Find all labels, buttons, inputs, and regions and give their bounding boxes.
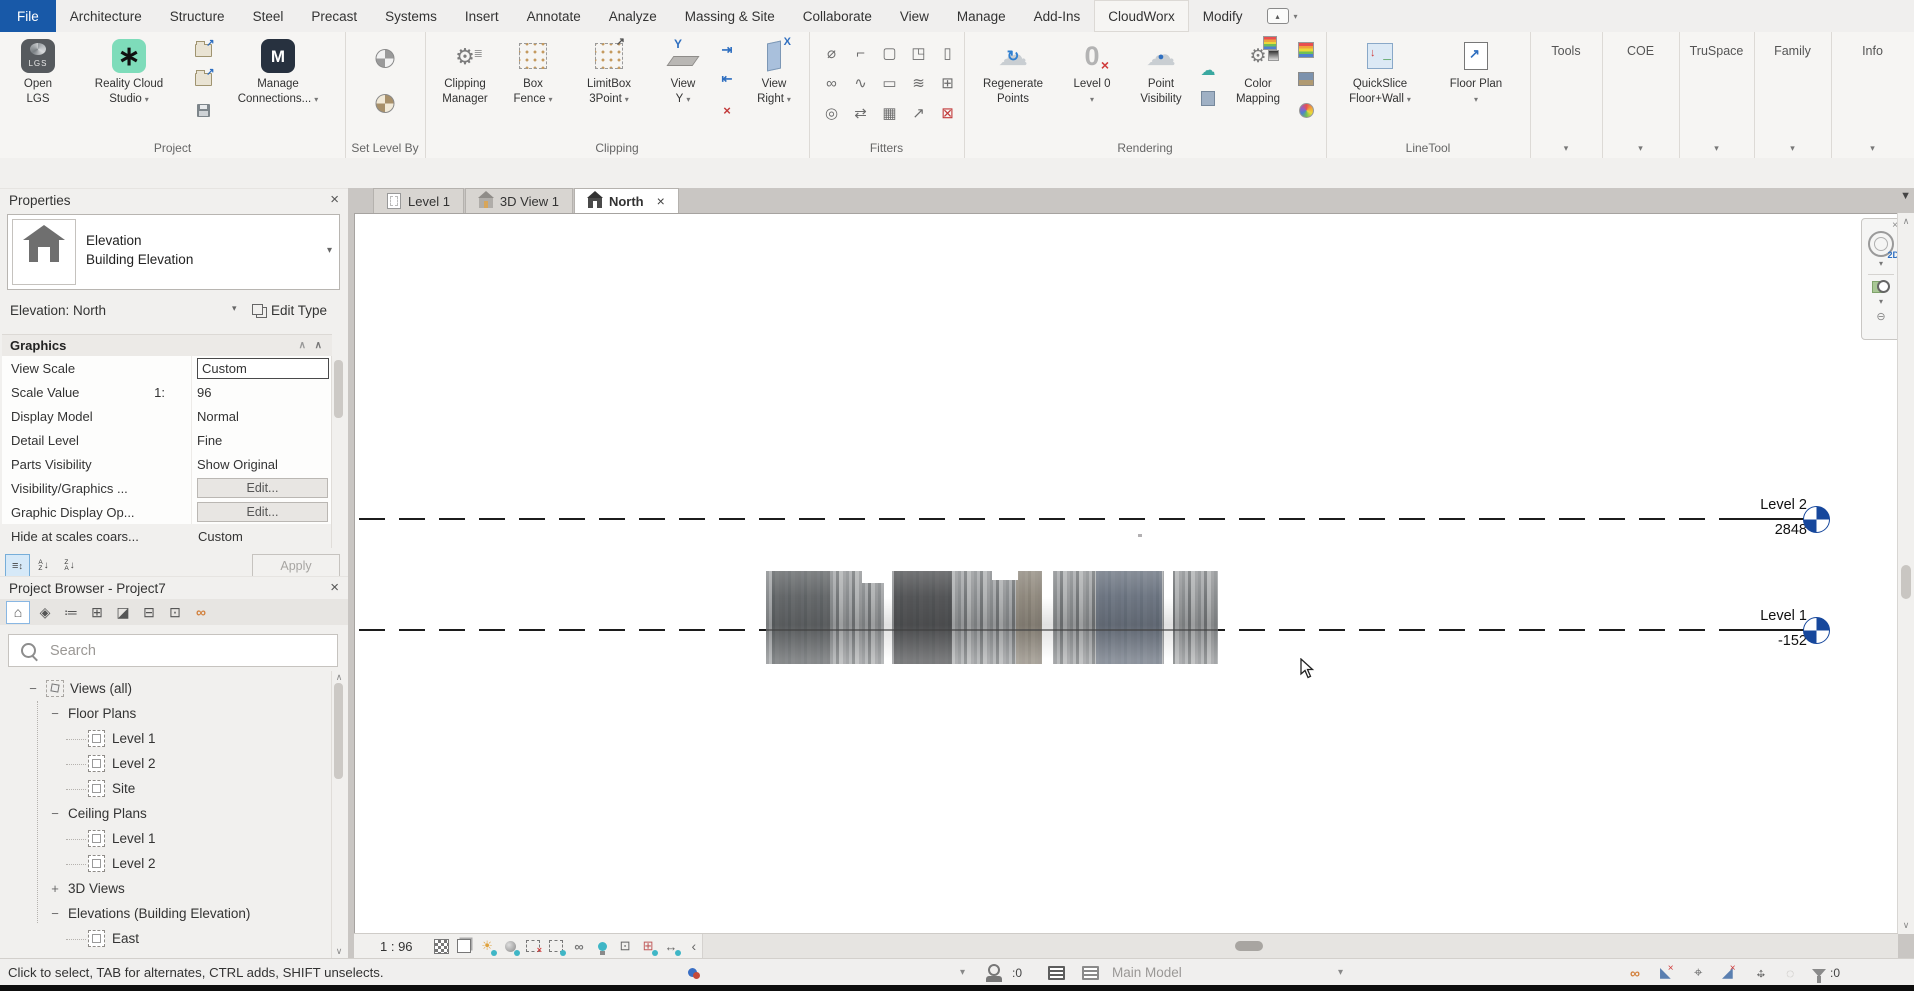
temporary-hide-isolate-icon[interactable]: [594, 938, 611, 955]
view-y-button[interactable]: Y View Y▾: [661, 36, 705, 106]
ribbon-panel-rendering: ☁↻ Regenerate Points 0 × Level 0 ▾ ☁● Po…: [964, 32, 1327, 158]
menu-tab-insert[interactable]: Insert: [451, 0, 513, 32]
tree-expander[interactable]: −: [48, 906, 62, 921]
cloudworx-ribbon: LGS Open LGS ∗ Reality Cloud Studio▾ ↗ ↗…: [0, 32, 1914, 159]
bottom-edge: [0, 985, 1914, 991]
scale-value-field[interactable]: 96: [191, 380, 332, 404]
menu-tab-view[interactable]: View: [886, 0, 943, 32]
fitter-disconnect-icon[interactable]: ⊠: [933, 98, 962, 128]
background-processes-icon[interactable]: ◌: [1786, 959, 1794, 986]
panel-label-info: Info: [1831, 44, 1914, 58]
view-right-button[interactable]: X View Right▾: [747, 36, 801, 106]
menu-tab-collaborate[interactable]: Collaborate: [789, 0, 886, 32]
ceiling-plan-view-icon: [88, 830, 105, 847]
point-visibility-button[interactable]: ☁● Point Visibility: [1132, 36, 1190, 106]
shadows-icon[interactable]: [502, 938, 519, 955]
level-1-head-icon[interactable]: [1803, 617, 1830, 644]
properties-footer: ≡↕ AZ↓ ZA↓ Apply: [0, 552, 348, 579]
navbar-minimize-icon[interactable]: ⊖: [1876, 310, 1885, 323]
selection-filter-icon[interactable]: [1812, 959, 1826, 986]
panel-expand-caret-icon[interactable]: ▾: [1754, 143, 1831, 154]
ribbon-panel-coe: COE ▾: [1602, 32, 1680, 158]
scroll-up-icon[interactable]: ∧: [1898, 216, 1914, 227]
elevation-view-icon: [88, 930, 105, 947]
dropdown-caret-icon[interactable]: ▾: [548, 93, 552, 106]
color-mapping-button[interactable]: ⚙ Color Mapping: [1230, 36, 1286, 106]
canvas-vertical-scrollbar[interactable]: ∧ ∨: [1897, 213, 1914, 934]
property-label: Graphic Display Op...: [2, 505, 191, 520]
reveal-hidden-elements-icon[interactable]: ∞: [571, 938, 588, 955]
reality-cloud-studio-button[interactable]: ∗ Reality Cloud Studio▾: [86, 36, 172, 106]
menu-tab-manage[interactable]: Manage: [943, 0, 1020, 32]
color-small-buttons: [1294, 32, 1318, 158]
ceiling-plan-view-icon: [88, 855, 105, 872]
tree-item-ceiling-plans[interactable]: − Ceiling Plans: [0, 801, 332, 826]
panel-label-clipping: Clipping: [425, 141, 809, 155]
tree-item-level-2[interactable]: Level 2: [0, 751, 332, 776]
show-crop-region-icon[interactable]: [548, 938, 565, 955]
ribbon-panel-info: Info ▾: [1831, 32, 1914, 158]
property-label: Visibility/Graphics ...: [2, 481, 191, 496]
stray-point-artifact: [1138, 534, 1142, 537]
floor-plan-button[interactable]: ↗ Floor Plan ▾: [1441, 36, 1511, 106]
panel-label-project: Project: [0, 141, 345, 155]
tree-item-east[interactable]: East: [0, 926, 332, 951]
fitter-export-icon[interactable]: ↗: [904, 98, 933, 128]
level-1-elevation-label[interactable]: -152: [1687, 633, 1807, 649]
tree-expander[interactable]: −: [48, 806, 62, 821]
fitter-grid-icon[interactable]: ⊞: [933, 68, 962, 98]
set-level-sphere-icon[interactable]: [376, 49, 395, 68]
display-model-field[interactable]: Normal: [191, 404, 332, 428]
sun-path-icon[interactable]: ☀: [479, 938, 496, 955]
set-level-points-icon[interactable]: [376, 94, 395, 113]
point-visibility-icon: ☁●: [1146, 41, 1176, 71]
zoom-region-icon[interactable]: [1872, 279, 1890, 295]
property-row: Detail Level Fine: [2, 428, 332, 453]
crop-view-icon[interactable]: ×: [525, 938, 542, 955]
dropdown-caret-icon[interactable]: ▾: [1407, 93, 1411, 106]
select-underlay-toggle[interactable]: ◣×: [1660, 959, 1674, 986]
ribbon-panel-fitters: ⌀ ⌐ ▢ ◳ ▯ ∞ ∿ ▭ ≋ ⊞ ◎ ⇄ ▦ ↗ ⊠ Fitters: [809, 32, 965, 158]
instance-caret-icon[interactable]: ▾: [232, 303, 237, 314]
view-tab-3d-view-1[interactable]: 3D View 1: [465, 188, 573, 213]
box-fence-icon: [519, 43, 547, 69]
menu-tab-analyze[interactable]: Analyze: [595, 0, 671, 32]
fitter-corner-icon[interactable]: ◳: [904, 38, 933, 68]
tree-expander[interactable]: +: [48, 881, 62, 896]
close-view-tab-icon[interactable]: ×: [657, 193, 665, 209]
level-2-line: [359, 518, 1741, 520]
clipping-manager-icon: ⚙≣: [455, 50, 475, 63]
ribbon-panel-truspace: TruSpace ▾: [1679, 32, 1755, 158]
section-collapse-icon[interactable]: ∧: [315, 340, 322, 351]
search-input[interactable]: [48, 642, 337, 660]
browser-scrollbar[interactable]: ∧ ∨: [331, 671, 346, 958]
ribbon-display-toggle[interactable]: ▴ ▾: [1257, 0, 1308, 32]
import-lgs-button[interactable]: ↗: [193, 40, 213, 60]
tree-item-views-all[interactable]: − Views (all): [0, 676, 332, 701]
import-project-button[interactable]: ↗: [193, 69, 213, 89]
box-fence-button[interactable]: Box Fence▾: [510, 36, 556, 106]
panel-label-linetool: LineTool: [1326, 141, 1530, 155]
type-preview: [12, 219, 76, 285]
project-small-buttons: ↗ ↗: [191, 32, 215, 158]
panel-label-fitters: Fitters: [809, 141, 964, 155]
panel-expand-caret-icon[interactable]: ▾: [1679, 143, 1754, 154]
viewport-top-strip: [348, 158, 1914, 189]
viewport-area: Level 1 3D View 1 North × ▼ Level 2 2848: [348, 158, 1914, 958]
level-0-button[interactable]: 0 × Level 0 ▾: [1066, 36, 1118, 106]
panel-label-set-level-by: Set Level By: [345, 141, 425, 155]
level-1-name-label[interactable]: Level 1: [1687, 608, 1807, 624]
property-label: View Scale: [2, 361, 191, 376]
dropdown-caret-icon[interactable]: ▾: [686, 93, 690, 106]
floor-plan-view-icon: [88, 780, 105, 797]
elevation-type-icon: [27, 239, 61, 265]
image-map-button[interactable]: [1296, 69, 1316, 89]
regenerate-points-button[interactable]: ☁↻ Regenerate Points: [973, 36, 1053, 106]
manage-connections-button[interactable]: M Manage Connections...▾: [232, 36, 324, 106]
dropdown-caret-icon[interactable]: ▾: [1090, 93, 1094, 106]
save-icon: [197, 104, 210, 117]
project-browser-title: Project Browser - Project7 ×: [0, 576, 348, 600]
panel-expand-caret-icon[interactable]: ▾: [1602, 143, 1679, 154]
fitter-duct-icon[interactable]: ∿: [846, 68, 875, 98]
floor-plan-icon: ↗: [1457, 36, 1495, 76]
panel-label-family: Family: [1754, 44, 1831, 58]
ribbon-panel-set-level-by: Set Level By: [345, 32, 426, 158]
select-pinned-toggle[interactable]: ⌖: [1694, 959, 1702, 986]
view-right-icon: X: [755, 36, 793, 76]
tree-expander[interactable]: −: [26, 681, 40, 696]
view-tab-bar: Level 1 3D View 1 North ×: [348, 188, 1914, 213]
project-browser-close-button[interactable]: ×: [330, 579, 339, 596]
panel-expand-caret-icon[interactable]: ▾: [1831, 143, 1914, 154]
folder-open-icon: ↗: [195, 73, 212, 86]
slice-forward-button[interactable]: ⇥: [717, 40, 737, 60]
tree-item-floor-plans[interactable]: − Floor Plans: [0, 701, 332, 726]
dropdown-caret-icon[interactable]: ▾: [314, 93, 318, 106]
palette-button[interactable]: [1296, 100, 1316, 120]
cloudworx-status-icon: [688, 959, 700, 986]
tree-item-ceiling-level-1[interactable]: Level 1: [0, 826, 332, 851]
navigation-bar: × 2D ▾ ▾ ⊖: [1861, 218, 1898, 340]
limitbox-icon: ↗: [595, 43, 623, 69]
mouse-cursor: [1300, 658, 1315, 680]
browser-groups-icon[interactable]: ⊟: [138, 602, 160, 623]
menu-tab-file[interactable]: File: [0, 0, 56, 32]
type-name-label: Building Elevation: [86, 250, 193, 269]
menu-tab-annotate[interactable]: Annotate: [513, 0, 595, 32]
ribbon-panel-linetool: ↓ ─ QuickSlice Floor+Wall▾ ↗ Floor Plan …: [1326, 32, 1531, 158]
tree-item-elevations[interactable]: − Elevations (Building Elevation): [0, 901, 332, 926]
reality-cloud-icon: ∗: [112, 39, 146, 73]
fitter-swap-icon[interactable]: ⇄: [846, 98, 875, 128]
browser-legends-icon[interactable]: ◈: [34, 602, 56, 623]
select-links-toggle[interactable]: ∞: [1630, 959, 1640, 986]
sort-ascending-button[interactable]: AZ↓: [31, 554, 56, 577]
level-2-elevation-label[interactable]: 2848: [1687, 522, 1807, 538]
slice-off-button[interactable]: ×: [717, 100, 737, 120]
level-2-line-solid: [1741, 518, 1807, 520]
selection-filter-count: :0: [1830, 959, 1840, 986]
properties-close-button[interactable]: ×: [330, 191, 339, 208]
parts-visibility-field[interactable]: Show Original: [191, 452, 332, 476]
property-label: Parts Visibility: [2, 457, 191, 472]
wheel-options-caret-icon[interactable]: ▾: [1879, 259, 1883, 268]
browser-toolbar: ⌂ ◈ ≔ ⊞ ◪ ⊟ ⊡ ∞: [0, 599, 348, 625]
fitter-window-icon[interactable]: ▦: [875, 98, 904, 128]
visibility-graphics-edit-button[interactable]: Edit...: [197, 478, 328, 498]
menu-tab-structure[interactable]: Structure: [156, 0, 239, 32]
menu-tab-architecture[interactable]: Architecture: [56, 0, 156, 32]
detail-level-icon[interactable]: [433, 938, 450, 955]
property-row: Graphic Display Op... Edit...: [2, 500, 332, 525]
properties-scrollbar[interactable]: [331, 356, 346, 548]
project-browser-palette: Project Browser - Project7 × ⌂ ◈ ≔ ⊞ ◪ ⊟…: [0, 576, 349, 958]
active-workset-label[interactable]: Main Model: [1112, 959, 1182, 986]
menu-tab-steel[interactable]: Steel: [239, 0, 298, 32]
fitter-cylinder-icon[interactable]: ▯: [933, 38, 962, 68]
view-y-icon: Y: [664, 36, 702, 76]
fitter-door-icon[interactable]: ▭: [875, 68, 904, 98]
ribbon-panel-clipping: ⚙≣ Clipping Manager Box Fence▾ ↗ LimitBo…: [425, 32, 810, 158]
tree-item-3d-views[interactable]: + 3D Views: [0, 876, 332, 901]
dropdown-caret-icon[interactable]: ▾: [625, 93, 629, 106]
fitter-glasses-icon[interactable]: ∞: [817, 68, 846, 98]
menu-tab-precast[interactable]: Precast: [297, 0, 371, 32]
browser-families-icon[interactable]: ◪: [112, 602, 134, 623]
ribbon-panel-family: Family ▾: [1754, 32, 1832, 158]
quickslice-floor-wall-button[interactable]: ↓ ─ QuickSlice Floor+Wall▾: [1335, 36, 1425, 106]
detail-level-field[interactable]: Fine: [191, 428, 332, 452]
apply-button[interactable]: Apply: [252, 554, 340, 577]
views-all-icon: [46, 680, 64, 697]
drawing-canvas[interactable]: Level 2 2848 Level 1 -152: [354, 213, 1898, 934]
menu-tab-systems[interactable]: Systems: [371, 0, 451, 32]
view-control-bar: 1 : 96 ☀ × ∞ ⊡ ⊞ ↔ ‹: [354, 933, 1898, 958]
property-row: Display Model Normal: [2, 404, 332, 429]
instance-selector[interactable]: Elevation: North: [10, 303, 106, 318]
drag-elements-toggle[interactable]: ↔↕: [1754, 959, 1768, 986]
property-row: Hide at scales coars... Custom: [2, 524, 332, 548]
instance-selector-row: Elevation: North ▾ Edit Type: [0, 300, 348, 325]
fitter-elbow-icon[interactable]: ⌐: [846, 38, 875, 68]
panel-expand-caret-icon[interactable]: ▾: [1530, 143, 1602, 154]
elevation-tab-icon: [588, 198, 602, 208]
type-selector[interactable]: Elevation Building Elevation ▾: [7, 214, 340, 290]
fitter-coil-icon[interactable]: ◎: [817, 98, 846, 128]
worksets-dialog-icon[interactable]: [1048, 959, 1065, 986]
floor-plan-tab-icon: [387, 193, 401, 209]
property-row: Visibility/Graphics ... Edit...: [2, 476, 332, 501]
canvas-horizontal-scrollbar[interactable]: [702, 934, 1898, 958]
horizontal-scroll-thumb[interactable]: [1235, 941, 1263, 951]
status-bar: Click to select, TAB for alternates, CTR…: [0, 958, 1914, 986]
clipping-manager-button[interactable]: ⚙≣ Clipping Manager: [434, 36, 496, 106]
color-mapping-icon: ⚙: [1239, 36, 1277, 76]
color-bars-button[interactable]: [1296, 40, 1316, 60]
properties-title: Properties ×: [0, 188, 348, 212]
menu-tab-massing-site[interactable]: Massing & Site: [671, 0, 789, 32]
viewbar-collapse-icon[interactable]: ‹: [692, 938, 697, 954]
vertical-scroll-thumb[interactable]: [1901, 565, 1911, 599]
reveal-constraints-icon[interactable]: ⊡: [617, 938, 634, 955]
sort-by-group-button[interactable]: ≡↕: [5, 554, 30, 577]
graphics-section-header[interactable]: Graphics ∧ ∧: [2, 334, 332, 357]
browser-revit-links-icon[interactable]: ∞: [190, 602, 212, 623]
visual-style-icon[interactable]: [456, 938, 473, 955]
active-workset-icon[interactable]: [1082, 959, 1099, 986]
type-selector-caret-icon[interactable]: ▾: [327, 245, 332, 256]
hide-at-scales-field[interactable]: Custom: [193, 524, 332, 548]
manage-connections-icon: M: [261, 39, 295, 73]
property-row: View Scale Custom: [2, 356, 332, 381]
worksharing-display-icon[interactable]: ⊞: [640, 938, 657, 955]
panel-label-truspace: TruSpace: [1679, 44, 1754, 58]
tab-overflow-icon[interactable]: ▼: [1900, 190, 1911, 202]
menu-tab-modify[interactable]: Modify: [1189, 0, 1257, 32]
browser-links-box-icon[interactable]: ⊡: [164, 602, 186, 623]
ribbon-minimize-icon: ▴: [1267, 8, 1289, 24]
tree-expander[interactable]: −: [48, 706, 62, 721]
workset-dropdown-caret-icon[interactable]: ▾: [1338, 959, 1343, 986]
browser-schedules-icon[interactable]: ≔: [60, 602, 82, 623]
property-row: Parts Visibility Show Original: [2, 452, 332, 477]
property-label: Display Model: [2, 409, 191, 424]
limitbox-3point-button[interactable]: ↗ LimitBox 3Point▾: [578, 36, 640, 106]
menu-tab-addins[interactable]: Add-Ins: [1020, 0, 1095, 32]
ribbon-panel-project: LGS Open LGS ∗ Reality Cloud Studio▾ ↗ ↗…: [0, 32, 346, 158]
fitter-conduit-icon[interactable]: ≋: [904, 68, 933, 98]
graphic-display-edit-button[interactable]: Edit...: [197, 502, 328, 522]
panel-label-rendering: Rendering: [964, 141, 1326, 155]
floor-plan-view-icon: [88, 755, 105, 772]
worksets-caret-icon[interactable]: ▾: [960, 959, 965, 986]
browser-sheets-icon[interactable]: ⊞: [86, 602, 108, 623]
search-icon: [21, 643, 36, 658]
select-by-face-toggle[interactable]: ◢×: [1722, 959, 1736, 986]
point-cloud[interactable]: [766, 571, 1218, 664]
rendering-small-buttons: ☁: [1196, 32, 1220, 158]
properties-palette: Properties × Elevation Building Elevatio…: [0, 188, 349, 572]
3d-view-tab-icon: [479, 198, 493, 208]
dropdown-caret-icon[interactable]: ▾: [787, 93, 791, 106]
view-scale-button[interactable]: 1 : 96: [380, 939, 413, 954]
scroll-down-icon[interactable]: ∨: [1898, 920, 1914, 931]
fitter-pipe-icon[interactable]: ⌀: [817, 38, 846, 68]
type-family-label: Elevation: [86, 231, 193, 250]
tree-item-ceiling-level-2[interactable]: Level 2: [0, 851, 332, 876]
ribbon-panel-tools: Tools ▾: [1530, 32, 1603, 158]
lgs-icon: LGS: [21, 39, 55, 73]
panel-label-tools: Tools: [1530, 44, 1602, 58]
zoom-options-caret-icon[interactable]: ▾: [1879, 297, 1883, 306]
view-scale-input[interactable]: Custom: [197, 358, 329, 379]
revit-application-window: File Architecture Structure Steel Precas…: [0, 0, 1914, 991]
property-label: Hide at scales coars...: [2, 529, 193, 544]
dropdown-caret-icon[interactable]: ▾: [1474, 93, 1478, 106]
cloud-settings-button[interactable]: ☁: [1198, 60, 1218, 80]
floor-plan-view-icon: [88, 730, 105, 747]
steering-wheel-2d-icon[interactable]: 2D: [1868, 231, 1894, 257]
fitters-tool-grid: ⌀ ⌐ ▢ ◳ ▯ ∞ ∿ ▭ ≋ ⊞ ◎ ⇄ ▦ ↗ ⊠: [817, 38, 965, 128]
editable-elements-icon[interactable]: [988, 959, 1000, 986]
level-2-name-label[interactable]: Level 2: [1687, 497, 1807, 513]
displacement-sets-icon[interactable]: ↔: [663, 938, 680, 955]
menu-tab-cloudworx[interactable]: CloudWorx: [1094, 0, 1189, 32]
sort-descending-button[interactable]: ZA↓: [57, 554, 82, 577]
section-pin-icon[interactable]: ∧: [299, 340, 306, 351]
quickslice-icon: ↓ ─: [1361, 36, 1399, 76]
level-1-line-solid: [1741, 629, 1807, 631]
browser-search-box[interactable]: [8, 634, 338, 667]
tree-item-site[interactable]: Site: [0, 776, 332, 801]
ribbon-minimize-caret-icon: ▾: [1294, 12, 1298, 21]
fitter-box-icon[interactable]: ▢: [875, 38, 904, 68]
slice-back-button[interactable]: ⇤: [717, 69, 737, 89]
browser-views-icon[interactable]: ⌂: [6, 601, 30, 624]
property-label: Scale Value1:: [2, 385, 191, 400]
box-visibility-button[interactable]: [1198, 88, 1218, 108]
property-row: Scale Value1: 96: [2, 380, 332, 405]
view-tab-level-1[interactable]: Level 1: [373, 188, 464, 213]
dropdown-caret-icon[interactable]: ▾: [145, 93, 149, 106]
edit-type-icon: [252, 304, 263, 315]
menu-bar: File Architecture Structure Steel Precas…: [0, 0, 1914, 33]
clipping-small-buttons: ⇥ ⇤ ×: [715, 32, 739, 158]
edit-type-button[interactable]: Edit Type: [252, 303, 327, 318]
left-dock: Properties × Elevation Building Elevatio…: [0, 158, 348, 958]
property-label: Detail Level: [2, 433, 191, 448]
save-connections-button[interactable]: [193, 100, 213, 120]
folder-open-icon: ↗: [195, 44, 212, 57]
editable-elements-count: :0: [1012, 959, 1022, 986]
view-tab-north[interactable]: North ×: [574, 188, 679, 213]
regenerate-points-icon: ☁↻: [998, 41, 1028, 71]
tree-item-level-1[interactable]: Level 1: [0, 726, 332, 751]
level-0-icon: 0 ×: [1073, 36, 1111, 76]
level-2-head-icon[interactable]: [1803, 506, 1830, 533]
open-lgs-button[interactable]: LGS Open LGS: [12, 36, 64, 106]
status-hint: Click to select, TAB for alternates, CTR…: [8, 959, 384, 986]
panel-label-coe: COE: [1602, 44, 1679, 58]
